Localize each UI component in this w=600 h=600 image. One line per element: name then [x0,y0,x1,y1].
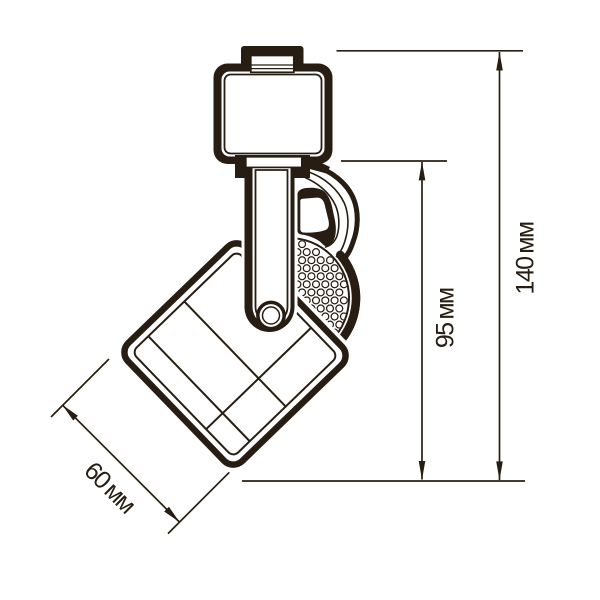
svg-text:140 мм: 140 мм [512,222,540,294]
svg-text:95 мм: 95 мм [432,288,460,348]
